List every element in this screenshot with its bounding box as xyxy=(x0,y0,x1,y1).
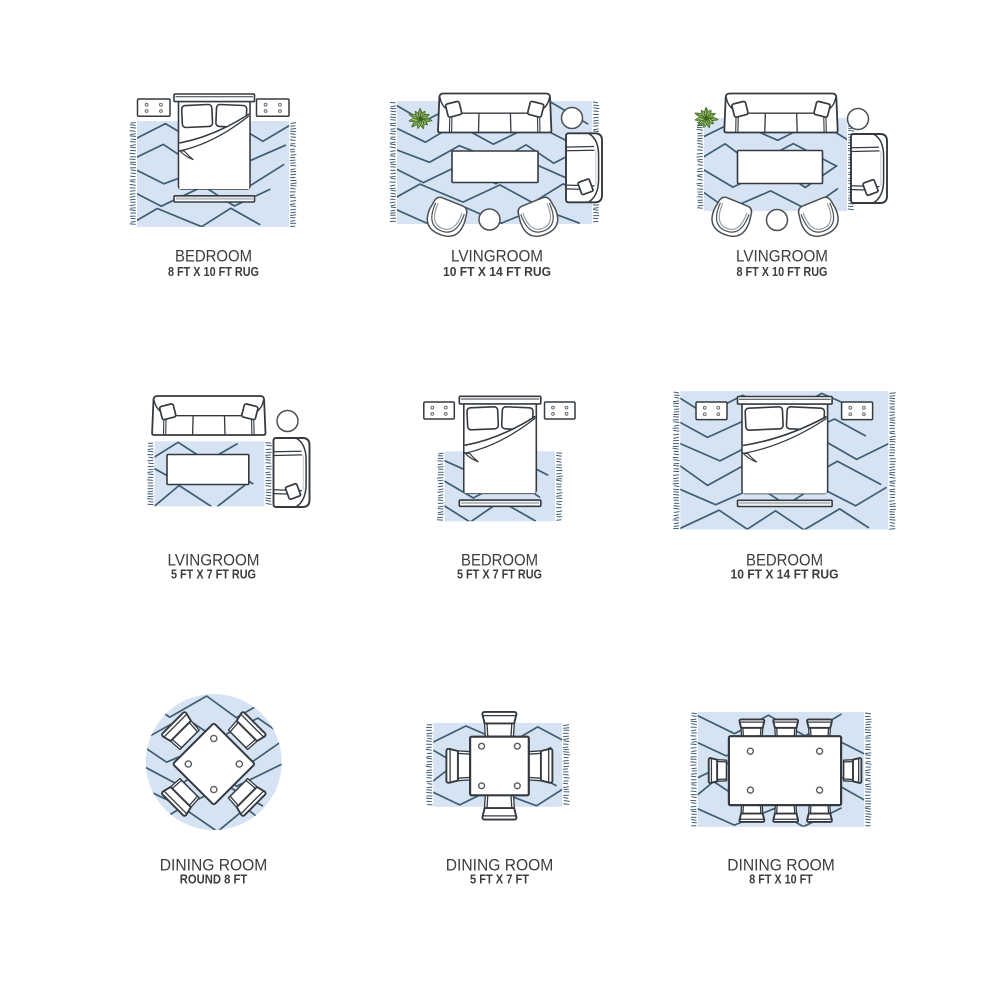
svg-text:LVINGROOM: LVINGROOM xyxy=(736,248,828,266)
svg-text:10 FT X 14 FT RUG: 10 FT X 14 FT RUG xyxy=(731,568,839,582)
svg-text:5 FT X 7 FT: 5 FT X 7 FT xyxy=(470,873,529,887)
svg-text:LVINGROOM: LVINGROOM xyxy=(451,248,543,266)
svg-text:BEDROOM: BEDROOM xyxy=(175,248,252,266)
svg-text:8 FT X 10 FT: 8 FT X 10 FT xyxy=(749,873,813,887)
svg-text:ROUND 8 FT: ROUND 8 FT xyxy=(180,873,248,887)
svg-text:8 FT X 10 FT RUG: 8 FT X 10 FT RUG xyxy=(168,265,259,279)
svg-text:10 FT X 14 FT RUG: 10 FT X 14 FT RUG xyxy=(443,265,551,279)
svg-text:5 FT X 7 FT RUG: 5 FT X 7 FT RUG xyxy=(457,568,542,582)
svg-text:5 FT X 7 FT RUG: 5 FT X 7 FT RUG xyxy=(171,568,256,582)
svg-text:8 FT X 10 FT RUG: 8 FT X 10 FT RUG xyxy=(737,265,828,279)
